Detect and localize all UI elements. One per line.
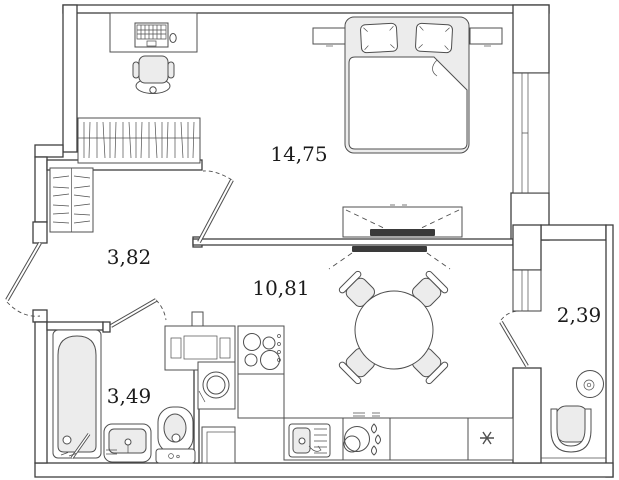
wall-hallway-bathroom xyxy=(47,322,103,330)
balcony-door xyxy=(501,311,527,366)
wall-balcony-right xyxy=(606,225,613,477)
dining-table xyxy=(355,291,433,369)
toilet xyxy=(156,407,195,463)
balcony-table xyxy=(577,371,604,398)
floor-plan-page: 14,75 3,82 10,81 3,49 2,39 xyxy=(0,0,619,480)
desk xyxy=(110,13,197,52)
living-area-label: 10,81 xyxy=(252,276,309,300)
pillow xyxy=(415,23,452,53)
wall-left-jog xyxy=(35,145,63,157)
entrance-door xyxy=(7,243,40,316)
bedroom-window xyxy=(513,73,549,193)
floor-plan: 14,75 3,82 10,81 3,49 2,39 xyxy=(0,0,619,480)
laptop-icon xyxy=(135,23,168,47)
wall-left-lower xyxy=(35,322,47,463)
mouse-icon xyxy=(170,34,176,43)
bedroom-furniture xyxy=(78,13,502,237)
nightstand-right xyxy=(470,28,502,46)
wall-right-upper xyxy=(513,5,549,73)
living-room-tv xyxy=(329,246,450,269)
pillow xyxy=(360,23,397,53)
partition-bedroom-living xyxy=(193,239,513,245)
bathroom-area-label: 3,49 xyxy=(107,384,152,408)
bathroom-sink xyxy=(104,424,151,462)
balcony-window xyxy=(513,270,541,311)
kitchen-sink xyxy=(289,424,330,457)
bedroom-area-label: 14,75 xyxy=(270,142,327,166)
wall-left-upper xyxy=(63,5,77,152)
windows xyxy=(513,73,549,311)
counter-faucet-marks xyxy=(353,413,380,416)
balcony-furniture xyxy=(541,371,606,459)
hallway-shelf-unit xyxy=(50,168,93,232)
wall-top xyxy=(63,5,549,13)
living-furniture xyxy=(329,246,450,385)
wall-bottom xyxy=(35,463,613,477)
bedroom-tv-icon xyxy=(370,229,435,236)
nightstand-left xyxy=(313,28,345,46)
bedroom-door xyxy=(199,171,232,242)
office-chair xyxy=(133,56,174,94)
washing-machine xyxy=(198,362,235,409)
vent-duct xyxy=(192,312,203,326)
dining-set xyxy=(338,270,449,385)
double-bed xyxy=(345,17,469,153)
balcony-chair xyxy=(551,406,591,452)
stove xyxy=(238,326,284,374)
wall-living-balcony-upper xyxy=(513,225,541,270)
wall-left-mid xyxy=(35,157,47,222)
tv-stand xyxy=(343,205,462,237)
kitchen-counter-left xyxy=(238,374,284,418)
balcony-area-label: 2,39 xyxy=(557,303,602,327)
wall-balcony-top xyxy=(541,225,606,240)
bathroom-door xyxy=(111,300,166,326)
wardrobe xyxy=(78,118,200,163)
bathroom-door-jamb xyxy=(103,322,110,332)
bathtub xyxy=(53,330,101,458)
kitchen xyxy=(165,312,513,463)
hallway-area-label: 3,82 xyxy=(107,245,152,269)
entrance-jamb-top xyxy=(33,222,47,243)
wall-tv-icon xyxy=(352,246,427,252)
wall-living-balcony-lower xyxy=(513,368,541,463)
